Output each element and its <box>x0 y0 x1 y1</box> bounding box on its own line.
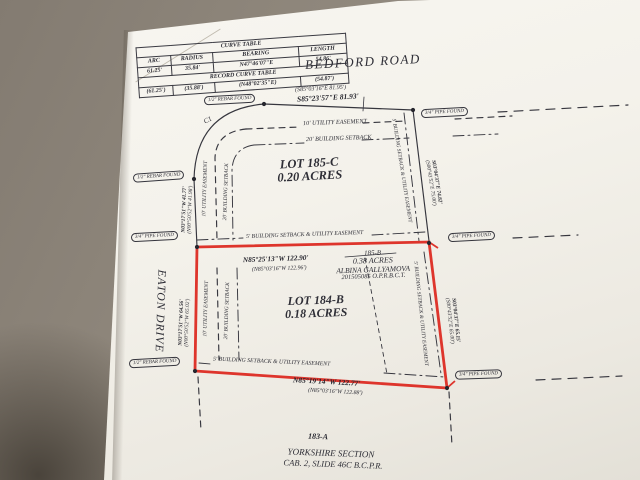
lot-184b-title: LOT 184-B 0.18 ACRES <box>266 292 367 321</box>
lot-185c-title: LOT 185-C 0.20 ACRES <box>261 155 357 186</box>
photo-background: CURVE TABLE ARC RADIUS BEARING LENGTH 61… <box>0 0 640 480</box>
monument-pipe-bottom-right: 3/4" PIPE FOUND <box>455 369 502 380</box>
record-curve-cell: (61.25') <box>139 85 174 97</box>
